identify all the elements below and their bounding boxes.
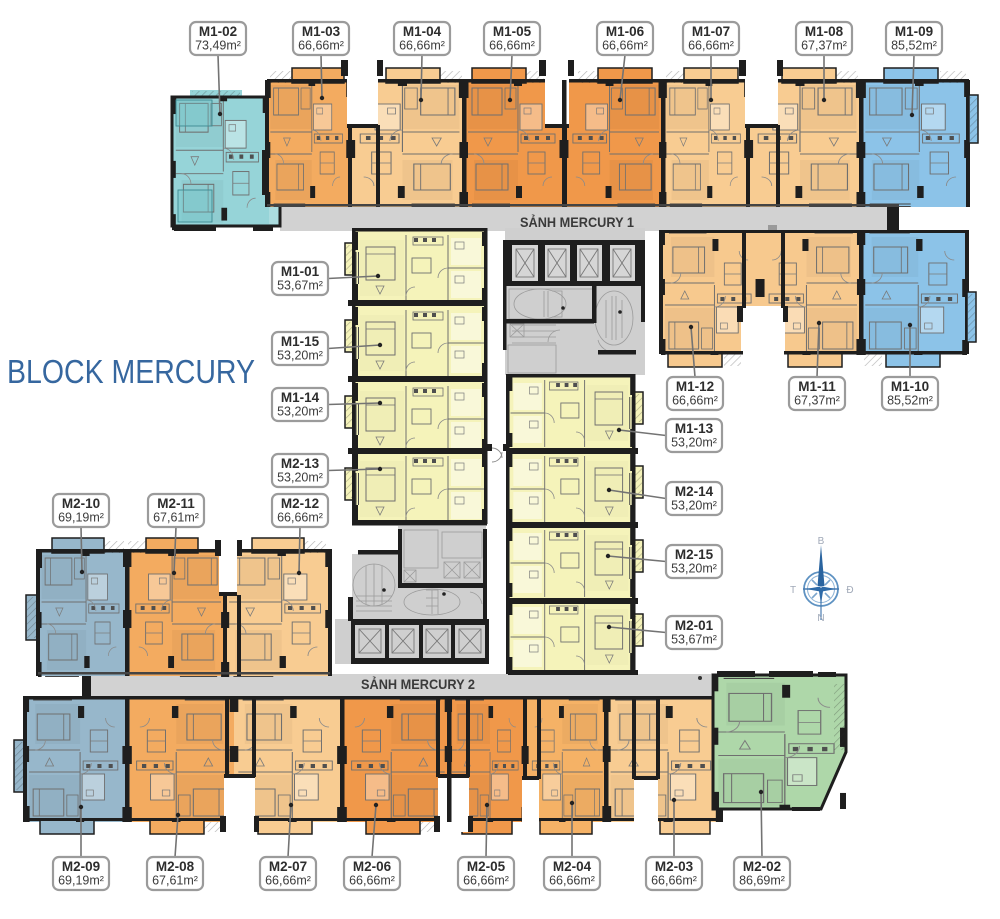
svg-text:M2-03: M2-03 — [655, 859, 694, 874]
svg-text:53,67m²: 53,67m² — [671, 633, 717, 647]
svg-text:66,66m²: 66,66m² — [277, 511, 323, 525]
svg-text:86,69m²: 86,69m² — [739, 874, 785, 888]
svg-text:66,66m²: 66,66m² — [651, 874, 697, 888]
svg-text:69,19m²: 69,19m² — [58, 511, 104, 525]
svg-text:66,66m²: 66,66m² — [349, 874, 395, 888]
svg-text:M2-13: M2-13 — [281, 456, 320, 471]
svg-text:85,52m²: 85,52m² — [891, 39, 937, 53]
svg-text:53,20m²: 53,20m² — [277, 405, 323, 419]
svg-text:M1-14: M1-14 — [281, 390, 320, 405]
svg-text:M2-08: M2-08 — [156, 859, 195, 874]
svg-text:M2-04: M2-04 — [553, 859, 592, 874]
svg-text:M1-04: M1-04 — [403, 24, 442, 39]
svg-text:M2-09: M2-09 — [62, 859, 100, 874]
svg-text:53,20m²: 53,20m² — [671, 436, 717, 450]
svg-text:M1-12: M1-12 — [676, 379, 714, 394]
svg-text:B: B — [818, 536, 825, 547]
svg-text:M2-12: M2-12 — [281, 496, 319, 511]
svg-text:M1-08: M1-08 — [805, 24, 844, 39]
svg-text:M2-10: M2-10 — [62, 496, 100, 511]
svg-text:66,66m²: 66,66m² — [298, 39, 344, 53]
svg-text:N: N — [817, 613, 824, 624]
svg-text:66,66m²: 66,66m² — [688, 39, 734, 53]
svg-text:M2-05: M2-05 — [467, 859, 506, 874]
svg-text:66,66m²: 66,66m² — [672, 394, 718, 408]
svg-text:M2-15: M2-15 — [675, 547, 714, 562]
svg-text:85,52m²: 85,52m² — [887, 394, 933, 408]
svg-text:53,67m²: 53,67m² — [277, 279, 323, 293]
svg-text:M2-02: M2-02 — [743, 859, 781, 874]
svg-text:M2-14: M2-14 — [675, 484, 714, 499]
svg-text:M1-11: M1-11 — [798, 379, 836, 394]
svg-text:SẢNH MERCURY 2: SẢNH MERCURY 2 — [361, 676, 475, 692]
svg-text:53,20m²: 53,20m² — [277, 471, 323, 485]
svg-text:67,37m²: 67,37m² — [801, 39, 847, 53]
svg-text:67,61m²: 67,61m² — [153, 511, 199, 525]
svg-text:M1-07: M1-07 — [692, 24, 730, 39]
svg-text:73,49m²: 73,49m² — [195, 39, 241, 53]
svg-text:69,19m²: 69,19m² — [58, 874, 104, 888]
svg-text:66,66m²: 66,66m² — [463, 874, 509, 888]
svg-text:M1-15: M1-15 — [281, 334, 320, 349]
svg-text:M2-11: M2-11 — [157, 496, 195, 511]
svg-text:M2-07: M2-07 — [269, 859, 307, 874]
svg-text:M2-06: M2-06 — [353, 859, 392, 874]
svg-text:M1-05: M1-05 — [493, 24, 532, 39]
svg-text:Đ: Đ — [846, 585, 853, 596]
svg-text:66,66m²: 66,66m² — [602, 39, 648, 53]
svg-text:67,37m²: 67,37m² — [794, 394, 840, 408]
svg-text:66,66m²: 66,66m² — [549, 874, 595, 888]
svg-text:BLOCK MERCURY: BLOCK MERCURY — [7, 353, 255, 390]
svg-text:M1-01: M1-01 — [281, 264, 320, 279]
svg-text:M1-10: M1-10 — [891, 379, 929, 394]
svg-text:66,66m²: 66,66m² — [265, 874, 311, 888]
svg-text:M1-09: M1-09 — [895, 24, 933, 39]
svg-text:66,66m²: 66,66m² — [489, 39, 535, 53]
svg-text:SẢNH MERCURY 1: SẢNH MERCURY 1 — [520, 214, 634, 230]
svg-text:M1-03: M1-03 — [302, 24, 341, 39]
svg-text:67,61m²: 67,61m² — [152, 874, 198, 888]
svg-text:53,20m²: 53,20m² — [671, 562, 717, 576]
svg-text:53,20m²: 53,20m² — [277, 349, 323, 363]
svg-text:53,20m²: 53,20m² — [671, 499, 717, 513]
svg-text:T: T — [790, 585, 796, 596]
svg-text:M2-01: M2-01 — [675, 618, 714, 633]
svg-text:M1-06: M1-06 — [606, 24, 645, 39]
svg-text:M1-02: M1-02 — [199, 24, 237, 39]
svg-text:M1-13: M1-13 — [675, 421, 714, 436]
svg-text:66,66m²: 66,66m² — [399, 39, 445, 53]
